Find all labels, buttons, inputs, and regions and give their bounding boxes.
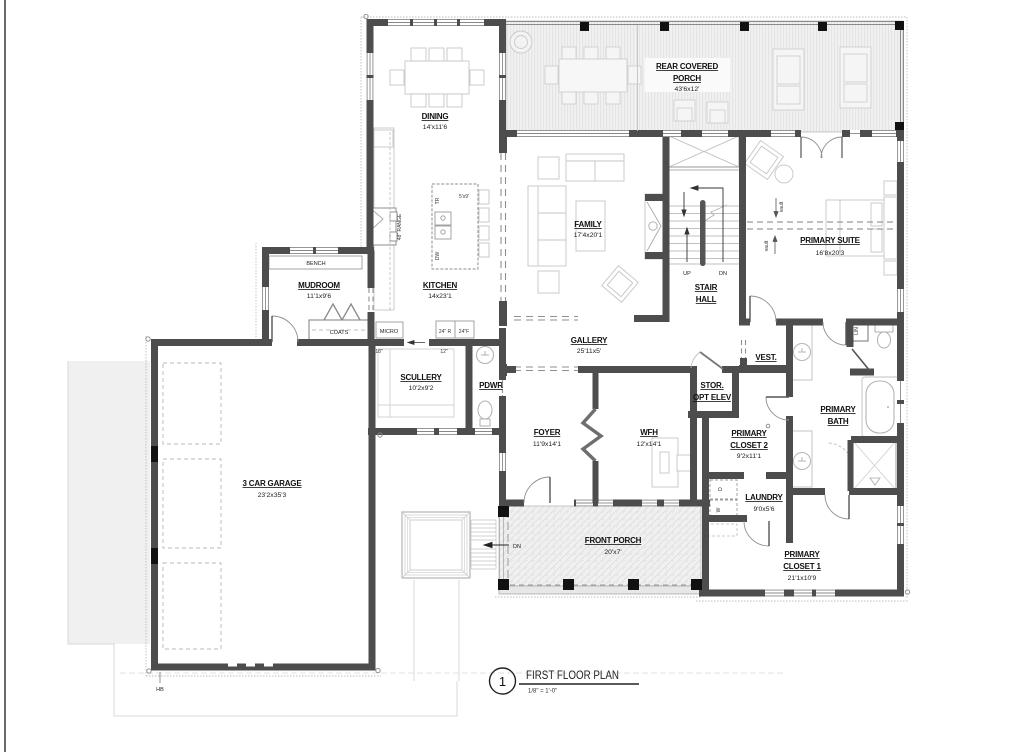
svg-text:FAMILY: FAMILY: [574, 220, 602, 229]
svg-text:43'6x12': 43'6x12': [675, 86, 700, 93]
svg-text:DINING: DINING: [422, 112, 449, 121]
svg-text:11'9x14'1: 11'9x14'1: [533, 441, 561, 448]
svg-text:24" R: 24" R: [439, 329, 452, 335]
svg-text:vault: vault: [764, 240, 770, 251]
svg-text:17'4x20'1: 17'4x20'1: [574, 232, 603, 239]
svg-text:DN: DN: [513, 544, 521, 550]
svg-text:1: 1: [499, 674, 506, 689]
svg-text:COATS: COATS: [330, 330, 349, 336]
svg-text:PRIMARY: PRIMARY: [820, 405, 856, 414]
svg-text:PRIMARY: PRIMARY: [731, 429, 767, 438]
svg-text:MUDROOM: MUDROOM: [298, 281, 340, 290]
svg-text:CLOSET 2: CLOSET 2: [730, 441, 768, 450]
svg-text:PDWR: PDWR: [479, 381, 503, 390]
svg-text:UP: UP: [683, 271, 691, 277]
svg-text:20'x7': 20'x7': [604, 549, 621, 556]
svg-text:9'0x5'6: 9'0x5'6: [753, 506, 774, 513]
svg-text:TR: TR: [435, 197, 441, 204]
svg-text:OPT ELEV: OPT ELEV: [693, 393, 732, 402]
svg-text:STAIR: STAIR: [695, 283, 718, 292]
svg-text:REAR COVERED: REAR COVERED: [656, 62, 718, 71]
svg-text:25'11x5': 25'11x5': [577, 348, 601, 355]
svg-text:11'1x9'6: 11'1x9'6: [307, 293, 332, 300]
svg-text:16'8x20'3: 16'8x20'3: [816, 250, 845, 257]
svg-text:12'x14'1: 12'x14'1: [637, 441, 662, 448]
svg-text:23'2x35'3: 23'2x35'3: [258, 492, 287, 499]
svg-text:HB: HB: [156, 687, 164, 693]
svg-text:HALL: HALL: [696, 295, 717, 304]
svg-text:12": 12": [440, 349, 448, 355]
svg-text:vault: vault: [779, 201, 785, 212]
svg-text:BATH: BATH: [828, 417, 849, 426]
svg-text:D: D: [718, 487, 724, 491]
svg-text:3 CAR GARAGE: 3 CAR GARAGE: [243, 479, 303, 488]
svg-text:DW: DW: [435, 252, 441, 261]
svg-text:FRONT PORCH: FRONT PORCH: [585, 536, 642, 545]
svg-text:BENCH: BENCH: [306, 261, 325, 267]
svg-text:LIN: LIN: [854, 327, 860, 335]
svg-text:5'x9': 5'x9': [459, 194, 469, 200]
svg-text:CLOSET 1: CLOSET 1: [783, 562, 821, 571]
svg-text:KITCHEN: KITCHEN: [423, 281, 458, 290]
svg-text:FOYER: FOYER: [534, 428, 561, 437]
svg-text:WFH: WFH: [640, 428, 658, 437]
svg-text:PRIMARY: PRIMARY: [784, 550, 820, 559]
svg-text:GALLERY: GALLERY: [571, 336, 608, 345]
svg-text:24"F: 24"F: [459, 329, 469, 335]
svg-text:9'2x11'1: 9'2x11'1: [737, 453, 762, 460]
svg-text:18": 18": [375, 349, 383, 355]
svg-text:14'x11'6: 14'x11'6: [423, 124, 448, 131]
svg-text:LAUNDRY: LAUNDRY: [745, 493, 783, 502]
svg-text:10'2x9'2: 10'2x9'2: [409, 385, 434, 392]
svg-text:14x23'1: 14x23'1: [428, 293, 452, 300]
svg-text:21'1x10'9: 21'1x10'9: [788, 575, 817, 582]
svg-text:FIRST FLOOR PLAN: FIRST FLOOR PLAN: [526, 668, 619, 682]
svg-text:1/8" = 1'-0": 1/8" = 1'-0": [528, 689, 557, 695]
svg-text:VEST.: VEST.: [755, 353, 776, 362]
svg-text:DN: DN: [719, 271, 727, 277]
svg-text:SCULLERY: SCULLERY: [400, 373, 442, 382]
svg-text:W: W: [716, 507, 722, 512]
svg-text:48" RANGE: 48" RANGE: [397, 213, 403, 240]
svg-text:MICRO: MICRO: [380, 329, 399, 335]
svg-text:PORCH: PORCH: [673, 74, 701, 83]
svg-text:STOR.: STOR.: [700, 381, 723, 390]
svg-text:PRIMARY SUITE: PRIMARY SUITE: [800, 236, 860, 245]
